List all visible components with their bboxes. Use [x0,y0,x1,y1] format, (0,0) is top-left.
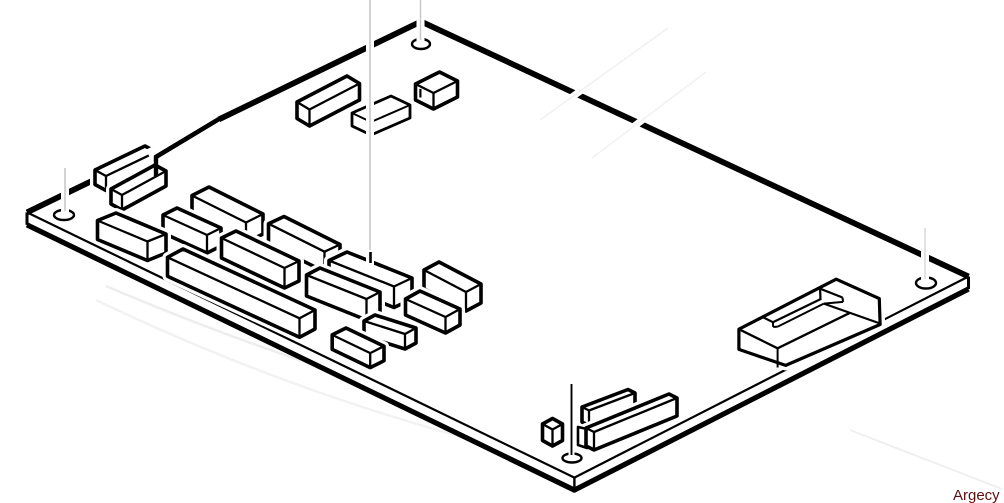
svg-text:Argecy: Argecy [953,487,1000,503]
